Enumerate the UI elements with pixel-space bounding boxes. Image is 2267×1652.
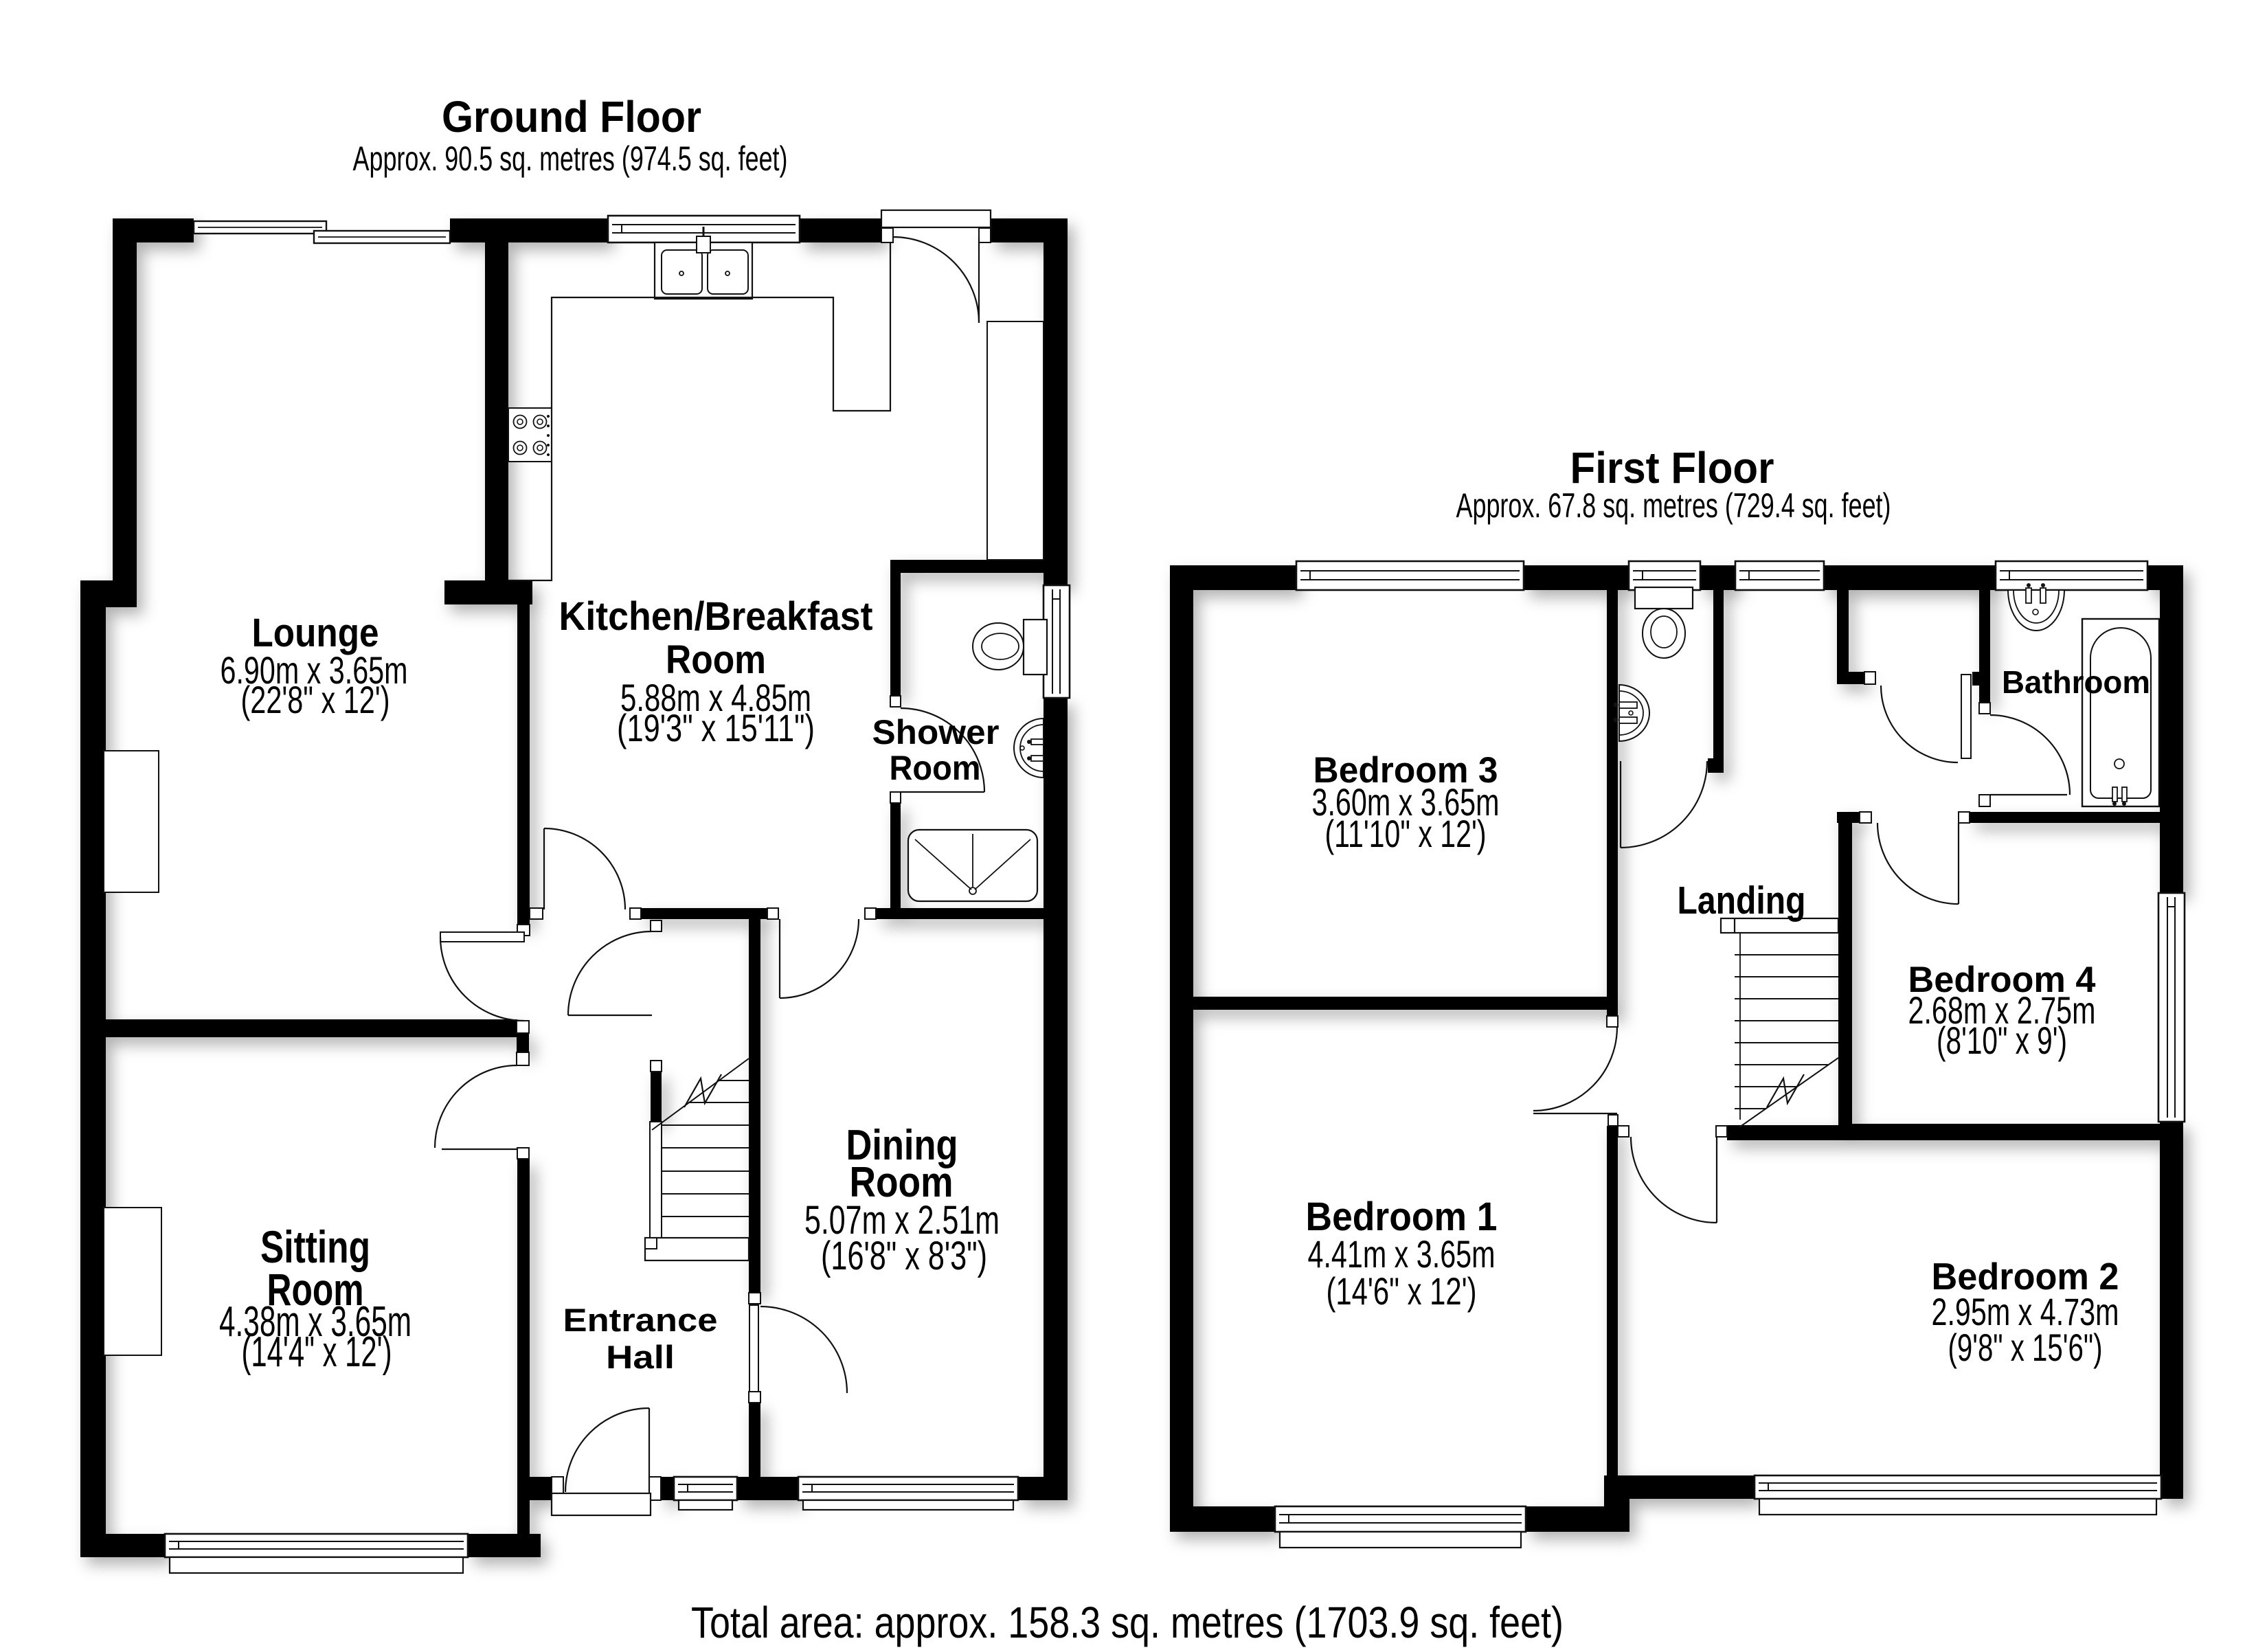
svg-text:Total area: approx. 158.3 sq.: Total area: approx. 158.3 sq. metres (17…	[691, 1598, 1564, 1647]
svg-text:(16'8" x 8'3"): (16'8" x 8'3")	[821, 1234, 987, 1278]
svg-text:(14'6" x 12'): (14'6" x 12')	[1327, 1269, 1477, 1313]
svg-text:Kitchen/Breakfast: Kitchen/Breakfast	[559, 594, 873, 639]
svg-text:(14'4" x 12'): (14'4" x 12')	[242, 1328, 392, 1376]
svg-text:Landing: Landing	[1678, 879, 1806, 923]
svg-text:(22'8" x 12'): (22'8" x 12')	[241, 678, 390, 721]
svg-text:Hall: Hall	[606, 1339, 675, 1375]
svg-text:Room: Room	[890, 749, 981, 787]
svg-text:First Floor: First Floor	[1570, 443, 1774, 493]
svg-text:Approx. 90.5 sq. metres (974.5: Approx. 90.5 sq. metres (974.5 sq. feet)	[353, 139, 788, 178]
svg-text:Shower: Shower	[872, 713, 1000, 751]
svg-text:Approx. 67.8 sq. metres (729.4: Approx. 67.8 sq. metres (729.4 sq. feet)	[1456, 486, 1891, 525]
svg-text:Entrance: Entrance	[563, 1302, 718, 1338]
svg-text:(19'3" x 15'11"): (19'3" x 15'11")	[617, 706, 815, 749]
svg-text:Ground Floor: Ground Floor	[442, 92, 701, 142]
svg-text:Bathroom: Bathroom	[2002, 664, 2150, 700]
svg-text:(11'10" x 12'): (11'10" x 12')	[1325, 812, 1487, 855]
svg-text:(9'8" x 15'6"): (9'8" x 15'6")	[1948, 1326, 2103, 1369]
svg-text:(8'10" x 9'): (8'10" x 9')	[1937, 1019, 2067, 1062]
